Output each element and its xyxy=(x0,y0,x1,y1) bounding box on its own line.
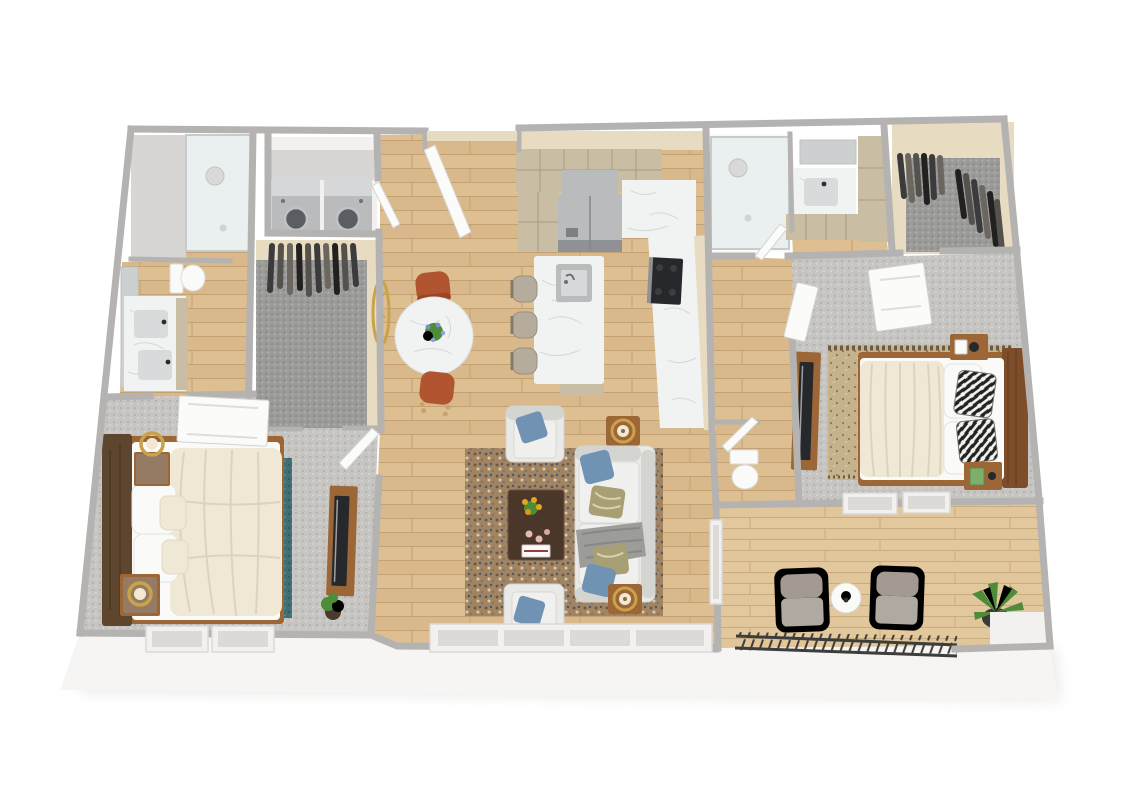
vanity-2 xyxy=(786,136,888,242)
candle-icon xyxy=(536,536,543,543)
tv-console-1 xyxy=(326,486,358,597)
faucet-icon xyxy=(822,182,827,187)
shower-head-icon xyxy=(729,159,747,177)
toilet-2 xyxy=(732,465,758,489)
kitchen-island xyxy=(534,256,604,396)
alarm-clock-icon xyxy=(969,342,979,352)
patio-chair xyxy=(869,565,925,631)
books xyxy=(955,340,967,354)
washer xyxy=(272,178,320,232)
bed-2 xyxy=(858,348,1028,488)
toilet-1 xyxy=(170,264,205,293)
refrigerator xyxy=(558,194,622,252)
bar-stool xyxy=(512,276,537,302)
vanity-1-cabinet xyxy=(176,298,188,390)
decor-icon xyxy=(988,472,996,480)
bathroom-1-door xyxy=(177,396,269,447)
sofa xyxy=(575,446,655,602)
patio-side-table xyxy=(831,583,861,613)
books xyxy=(970,468,984,485)
dryer xyxy=(324,178,372,232)
closet-2-door xyxy=(868,262,932,331)
bed-1-pillow xyxy=(160,496,186,530)
patio-chair-back xyxy=(780,573,823,598)
patio-glass-door xyxy=(710,520,722,604)
vanity-2-sink xyxy=(804,178,838,206)
shower-drain-icon xyxy=(745,215,752,222)
kitchen-backsplash-wall xyxy=(519,131,707,150)
shower-1 xyxy=(186,135,253,251)
island-sink xyxy=(556,264,592,302)
counter-top-run xyxy=(622,180,696,238)
bed-2-zebra-pillow xyxy=(953,370,997,419)
nightstand-1b xyxy=(120,574,160,616)
bed-2-duvet xyxy=(860,361,944,477)
sofa-pillow-olive xyxy=(588,485,626,519)
bar-stool xyxy=(512,312,537,338)
shower-drain-icon xyxy=(220,225,227,232)
floating-nightstand-2b xyxy=(964,462,1002,490)
faucet-icon xyxy=(166,360,171,365)
coffee-table xyxy=(508,490,564,560)
living-room-window-wall xyxy=(430,624,712,652)
faucet-icon xyxy=(162,320,167,325)
bed-1-duvet xyxy=(170,448,282,616)
patio-chair-seat xyxy=(781,597,824,626)
microwave-hood xyxy=(562,170,618,194)
floorplan-svg xyxy=(0,0,1131,800)
dining-table xyxy=(395,297,473,375)
entry-threshold xyxy=(427,131,517,141)
bed-1-pillow xyxy=(162,540,188,574)
candle-icon xyxy=(526,531,533,538)
candle-icon xyxy=(544,529,550,535)
patio-chair xyxy=(774,567,830,633)
range-stove xyxy=(647,257,683,305)
patio-chair-back xyxy=(876,571,919,596)
bar-stool xyxy=(512,348,537,374)
bed-2-zebra-pillow xyxy=(956,418,998,464)
bar-stools xyxy=(512,276,537,374)
toilet-2-tank xyxy=(730,450,758,464)
patio-chair-seat xyxy=(875,595,918,624)
shower-head-icon xyxy=(206,167,224,185)
vanity-1-sink xyxy=(138,350,172,380)
floorplan-rendering xyxy=(0,0,1131,800)
side-table-lamp xyxy=(606,416,640,446)
pantry-cabinet xyxy=(518,192,558,252)
toilet-room xyxy=(730,450,758,489)
bedroom-2-windows xyxy=(843,492,950,514)
vanity-2-mirror xyxy=(800,140,856,164)
armchair xyxy=(506,406,564,462)
books-tray xyxy=(522,545,550,557)
floating-nightstand-2a xyxy=(950,334,988,360)
side-table-lamp xyxy=(608,584,642,614)
bathroom-1-wall-chase xyxy=(131,135,186,262)
